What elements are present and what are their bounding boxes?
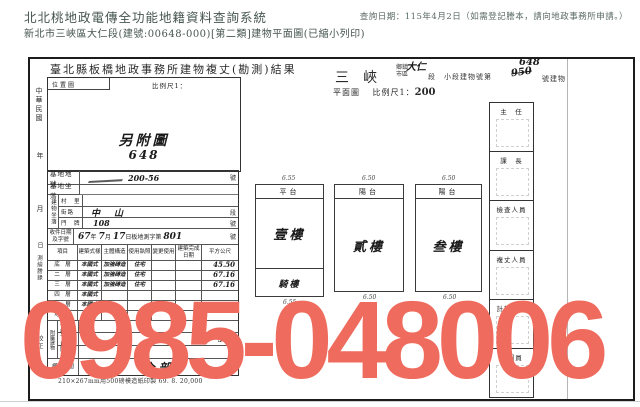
receipt-year: 67: [78, 232, 91, 242]
table-row: 底 層 本國式 加強磚造 住宅 45.50: [48, 261, 238, 271]
location-map-box: 位置圖 比例尺1： 另附圖 648: [47, 77, 241, 172]
floor-date: [176, 261, 202, 270]
door-label: 門 牌: [59, 218, 83, 228]
location-map-note: 另附圖: [48, 130, 240, 150]
site-blank: [80, 185, 238, 195]
col-header-area: 平方公尺: [202, 245, 238, 260]
village-row: 村 里: [59, 195, 238, 207]
building-location-row: 建物坐落 村 里 街路 中山 段 門 牌 108 號: [48, 195, 238, 229]
seal-area: [496, 217, 529, 245]
official-cell: 檢查人員: [490, 201, 533, 250]
plan-balcony-label: 陽台: [335, 185, 403, 199]
plan-floor-label: 壹樓: [256, 199, 323, 268]
street-value: 中山: [91, 206, 137, 219]
official-title: 主 任: [490, 103, 533, 116]
number-line-prefix: 段 小段建物號第: [428, 72, 492, 82]
dimension-label: 6.55: [282, 175, 295, 182]
app-header: 北北桃地政電傳全功能地籍資料查詢系統 查詢日期：115年4月2日（如需登記謄本，…: [0, 0, 640, 56]
floor-style: 本國式: [78, 261, 102, 270]
scale-value: 200: [415, 87, 436, 98]
lot-number-suffix: 號: [230, 173, 238, 182]
official-cell: 主 任: [490, 103, 533, 152]
number-handwritten: 648: [519, 57, 540, 68]
official-title: 課 長: [490, 152, 533, 165]
col-header-date: 建築完成日期: [176, 245, 202, 260]
official-cell: 課 長: [490, 152, 533, 201]
plan-terrace-label: 平台: [256, 185, 323, 199]
margin-year: 年: [35, 152, 45, 161]
seal-area: [496, 119, 529, 147]
village-label: 村 里: [59, 195, 83, 206]
receipt-office-text: 日板地測字第: [125, 232, 161, 241]
receipt-row: 收件日期及字號 67 年 7 月 17 日板地測字第 801 號: [48, 229, 238, 245]
dimension-label: 6.50: [362, 175, 375, 182]
receipt-month-unit: 月: [105, 232, 111, 241]
table-header-row: 項目 建築式樣 主體構造 使用執照 變更使用 建築完成日期 平方公尺: [48, 245, 238, 261]
plan-label: 平面圖: [333, 88, 360, 97]
receipt-year-unit: 年: [91, 232, 97, 241]
seal-area: [496, 168, 529, 196]
floor-area: 45.50: [202, 261, 238, 270]
receipt-number: 801: [163, 232, 182, 242]
margin-era: 中華民國: [34, 87, 44, 123]
receipt-suffix: 號: [230, 232, 238, 241]
building-location-label: 建物坐落: [48, 195, 59, 228]
floor-name: 底 層: [48, 261, 78, 270]
receipt-day: 17: [113, 232, 126, 242]
location-map-label: 位置圖: [48, 78, 110, 90]
street-label: 街路: [59, 207, 83, 217]
receipt-label: 收件日期及字號: [48, 229, 74, 244]
section-handwritten: 大仁: [406, 58, 426, 73]
col-header-structure: 主體構造: [102, 245, 128, 260]
location-map-scale: 比例尺1：: [152, 80, 187, 90]
door-suffix: 號: [230, 219, 238, 228]
margin-note1: 測繪謄錄: [35, 255, 43, 281]
site-row: 基地坐落: [48, 185, 238, 195]
system-title: 北北桃地政電傳全功能地籍資料查詢系統: [24, 7, 267, 26]
scale-label: 比例尺1：: [373, 88, 415, 97]
col-header-style: 建築式樣: [78, 245, 102, 260]
plan-unit-third-floor: 陽台 叁樓: [415, 184, 482, 292]
plan-balcony-label: 陽台: [416, 185, 481, 199]
dimension-label: 6.50: [442, 175, 455, 182]
margin-day: 日: [35, 242, 44, 250]
door-row: 門 牌 108 號: [59, 218, 238, 228]
floor-structure: 加強磚造: [102, 261, 128, 270]
plan-unit-second-floor: 陽台 貳樓: [334, 184, 404, 292]
site-label: 基地坐落: [48, 185, 80, 194]
col-header-change: 變更使用: [152, 245, 176, 260]
watermark-phone-number: 0985-048006: [20, 286, 640, 396]
col-header-item: 項目: [48, 245, 78, 260]
door-value: 108: [93, 218, 110, 228]
official-title: 複丈人員: [490, 251, 533, 264]
floor-use: 住宅: [128, 261, 152, 270]
doc-title: 臺北縣板橋地政事務所建物複丈(勘測)結果: [50, 61, 297, 77]
doc-subtitle: 新北市三峽區大仁段(建號:00648-000)[第二類]建物平面圖(已縮小列印): [24, 25, 365, 40]
plan-scale-line: 平面圖 比例尺1：200: [333, 87, 436, 98]
location-map-number: 648: [48, 148, 240, 162]
township-name: 三峽: [335, 67, 391, 87]
street-suffix: 段: [230, 208, 238, 217]
col-header-license: 使用執照: [128, 245, 152, 260]
floor-change: [152, 261, 176, 270]
crossed-out-scribble: [88, 172, 126, 182]
official-title: 檢查人員: [490, 201, 533, 214]
lot-number-value: 200-56: [128, 173, 159, 183]
query-date: 查詢日期：115年4月2日（如需登記謄本，請向地政事務所申請。）: [360, 10, 628, 22]
number-line-suffix: 號建物: [542, 74, 566, 84]
street-row: 街路 中山 段: [59, 207, 238, 218]
margin-month: 月: [35, 205, 45, 214]
